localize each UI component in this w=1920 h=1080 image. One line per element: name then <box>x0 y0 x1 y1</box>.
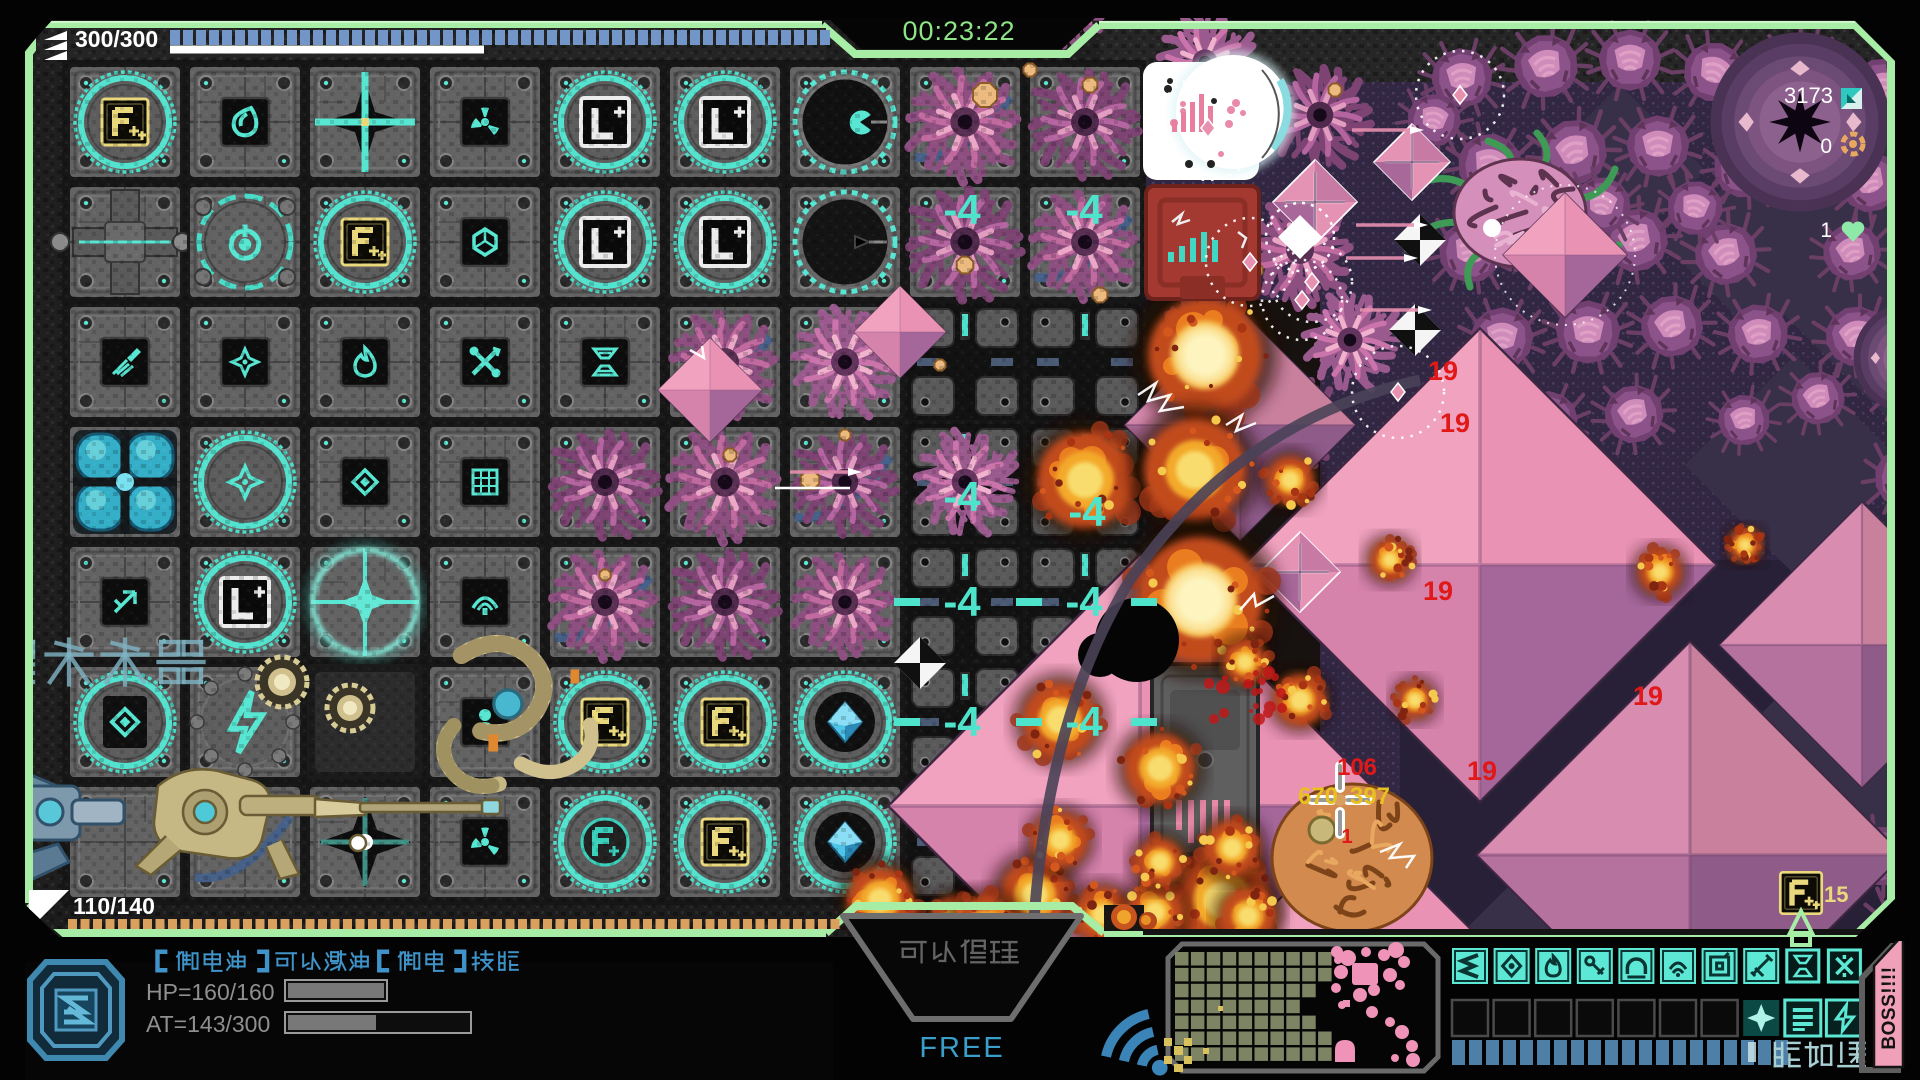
svg-text:FREE: FREE <box>919 1032 1004 1064</box>
svg-text:15: 15 <box>1824 882 1848 907</box>
svg-text:-4: -4 <box>1065 578 1103 625</box>
svg-text:-4: -4 <box>1068 488 1106 535</box>
svg-text:300/300: 300/300 <box>75 26 158 52</box>
svg-text:19: 19 <box>1440 408 1470 438</box>
svg-text:19: 19 <box>1633 681 1663 711</box>
svg-text:110/140: 110/140 <box>73 893 155 919</box>
svg-text:00:23:22: 00:23:22 <box>902 16 1015 46</box>
svg-text:19: 19 <box>1428 356 1458 386</box>
svg-text:1: 1 <box>1820 219 1832 242</box>
svg-text:19: 19 <box>1467 756 1497 786</box>
svg-text:-4: -4 <box>943 578 981 625</box>
svg-text:3173: 3173 <box>1784 83 1833 108</box>
svg-text:397: 397 <box>1350 783 1390 810</box>
svg-text:-4: -4 <box>943 473 981 520</box>
svg-text:-4: -4 <box>1065 186 1103 233</box>
svg-text:AT=143/300: AT=143/300 <box>146 1011 270 1037</box>
svg-text:106: 106 <box>1337 754 1377 781</box>
svg-text:-4: -4 <box>1065 698 1103 745</box>
svg-text:-4: -4 <box>943 186 981 233</box>
svg-text:-4: -4 <box>943 698 981 745</box>
svg-text:1: 1 <box>1341 826 1352 848</box>
svg-text:670: 670 <box>1298 783 1338 810</box>
svg-text:HP=160/160: HP=160/160 <box>146 979 275 1005</box>
svg-text:BOSS!!!!: BOSS!!!! <box>1879 966 1900 1049</box>
svg-text:19: 19 <box>1423 576 1453 606</box>
svg-text:0: 0 <box>1820 135 1832 158</box>
